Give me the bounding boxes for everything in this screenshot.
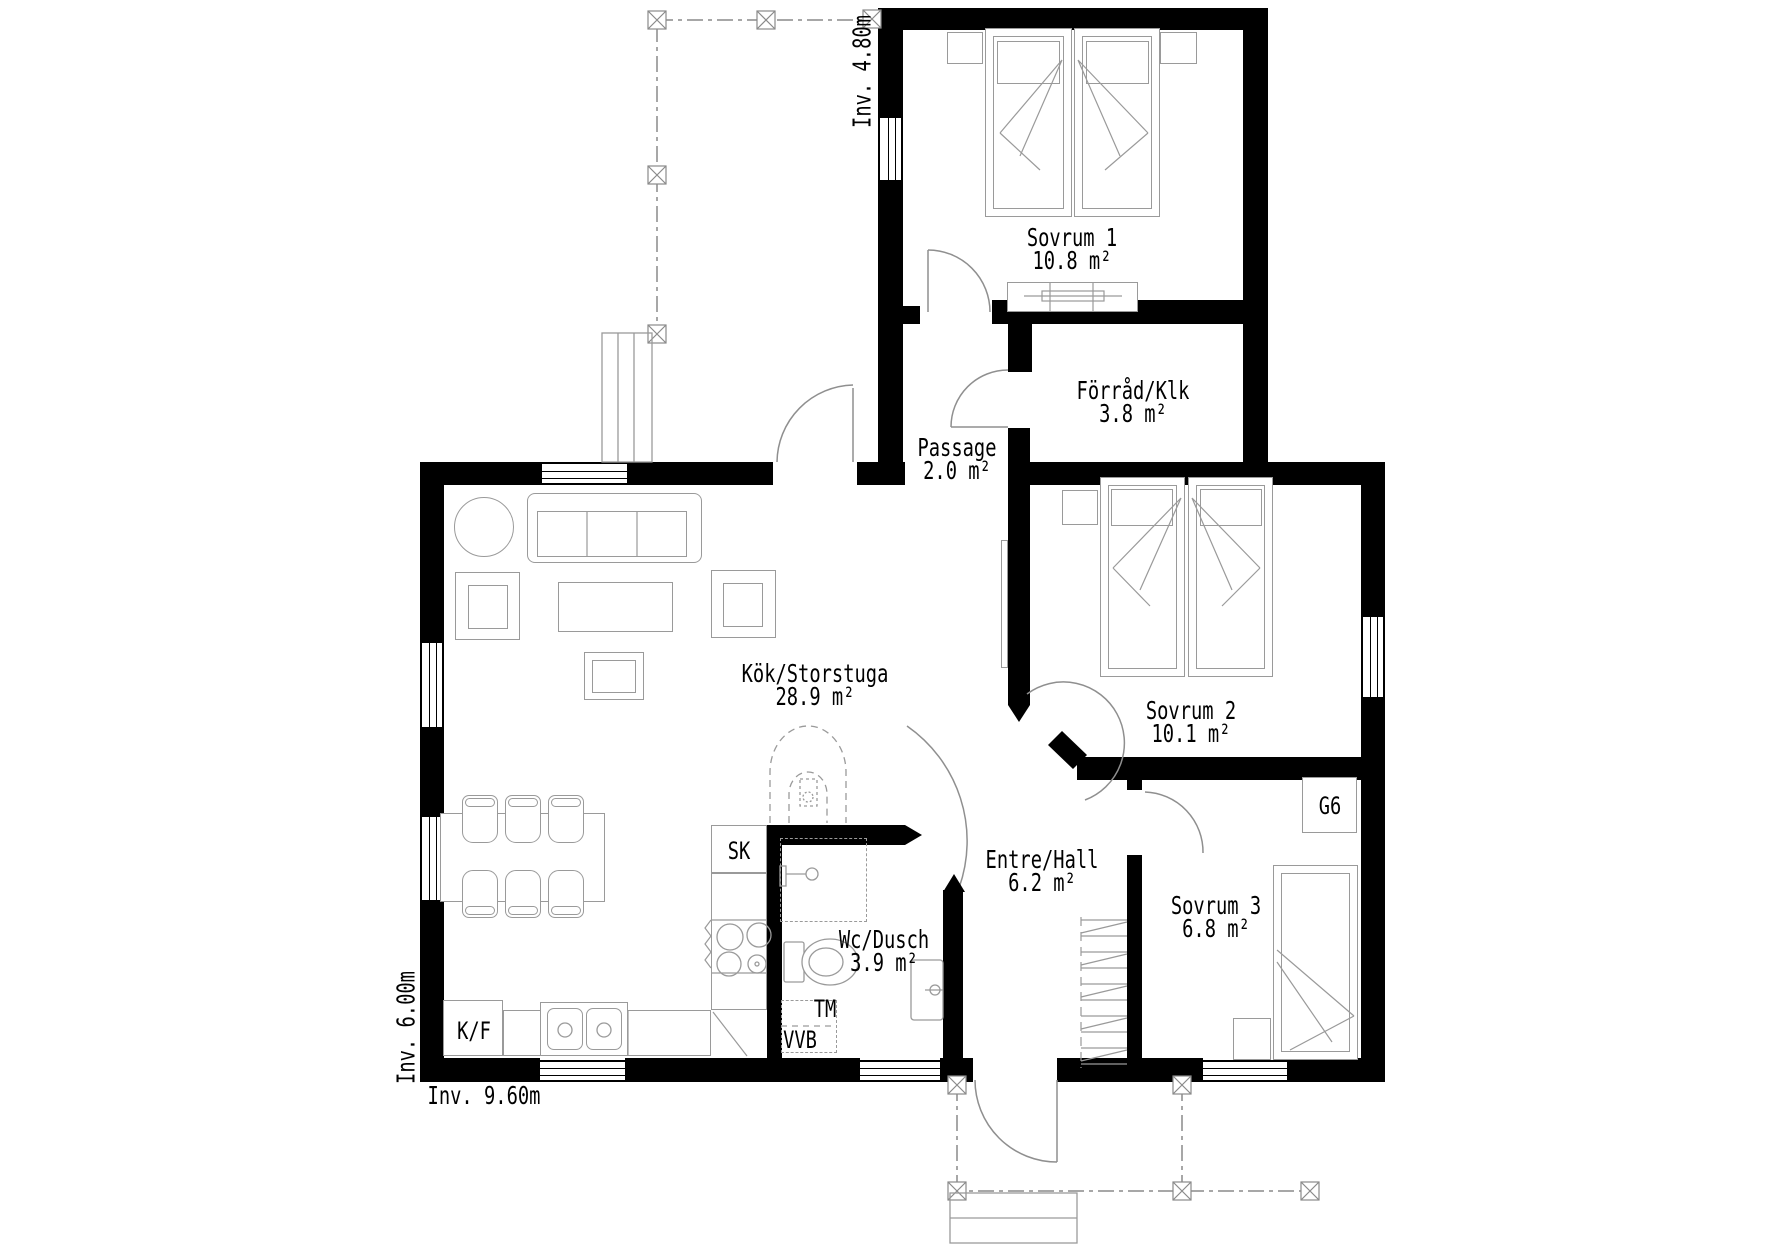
dining-chair [505,870,541,918]
wall [1361,697,1385,1082]
sliding-panel [1001,540,1008,668]
wall [1057,1058,1203,1082]
dining-chair [548,870,584,918]
side-table [454,497,514,557]
wall [940,1058,973,1082]
dining-chair [505,795,541,843]
wall [420,462,444,643]
wall [943,890,963,1058]
dimension-front: Inv. 9.60m [324,1081,644,1110]
bed-pillow [1086,41,1149,84]
room-label-kok-storstuga: Kök/Storstuga28.9 m² [615,662,1015,708]
wall [1361,462,1385,617]
bed-pillow [1200,489,1262,526]
room-label-forrad-klk: Förråd/Klk3.8 m² [933,379,1333,425]
sink-basin [586,1008,622,1050]
label-g6: G6 [1270,794,1390,818]
label-tm: TM [765,997,885,1021]
bed-pillow [1111,489,1173,526]
window [542,462,627,485]
dimension-side: Inv. 6.00m [392,868,421,1188]
floor-plan: Sovrum 110.8 m² Förråd/Klk3.8 m² Passage… [0,0,1779,1245]
room-label-entre-hall: Entre/Hall6.2 m² [842,848,1242,894]
room-label-wc-dusch: Wc/Dusch3.9 m² [684,928,1084,974]
room-label-sovrum-2: Sovrum 210.1 m² [991,699,1391,745]
window [1203,1060,1287,1082]
dining-chair [462,795,498,843]
pergola-outline [657,20,872,334]
wall [420,727,444,817]
wall [420,900,444,1082]
label-kf: K/F [414,1019,534,1043]
window [1361,617,1385,697]
wall [878,8,903,120]
room-label-passage: Passage2.0 m² [757,436,1157,482]
bed-pillow [997,41,1060,84]
wall [1127,780,1142,790]
window [878,118,903,180]
armchair-seat [723,583,763,627]
wall [627,462,773,485]
dimension-gable: Inv. 4.80m [848,0,877,232]
dining-chair [548,795,584,843]
wall [625,1058,860,1082]
wall [1008,324,1032,372]
coffee-table [558,582,673,632]
room-label-sovrum-1: Sovrum 110.8 m² [872,226,1272,272]
nightstand [947,32,983,64]
wall-jamb [903,306,920,324]
porch-outline [948,1085,1310,1191]
label-sk: SK [679,839,799,863]
nightstand [1160,32,1197,64]
sink-basin [547,1008,583,1050]
armchair-seat [468,585,508,629]
dresser [1007,282,1138,312]
nightstand [1233,1018,1271,1060]
wall [878,8,1268,30]
sofa-seat [537,511,687,557]
label-vvb: VVB [740,1028,860,1052]
wardrobe [1062,490,1098,525]
window [420,643,444,727]
window [860,1060,940,1082]
window [540,1060,625,1082]
fireplace [770,726,846,823]
wall [420,1058,540,1082]
dining-chair [462,870,498,918]
